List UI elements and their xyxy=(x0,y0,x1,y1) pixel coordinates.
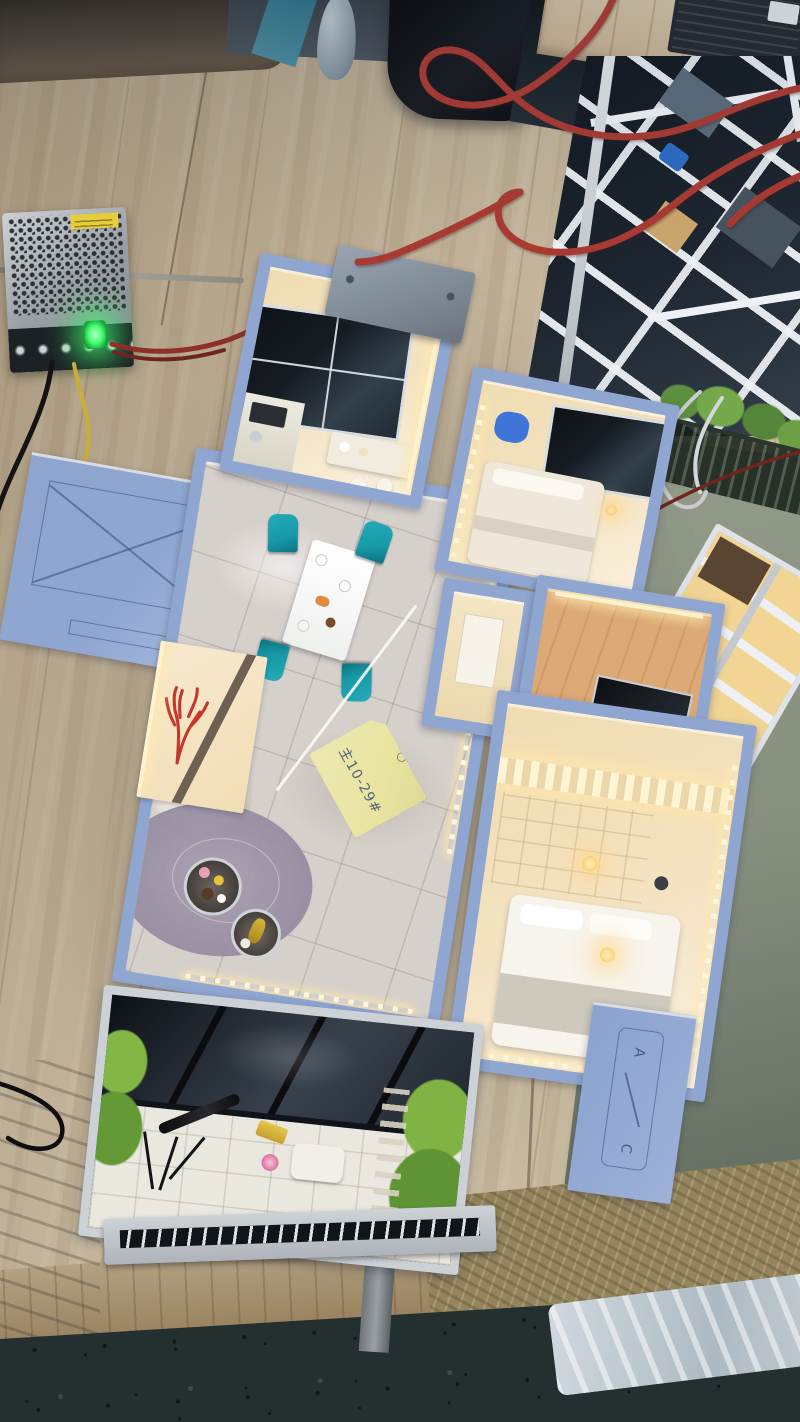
photo-canvas: 主10-29# ○ xyxy=(0,0,800,1422)
red-cable xyxy=(0,0,800,1422)
